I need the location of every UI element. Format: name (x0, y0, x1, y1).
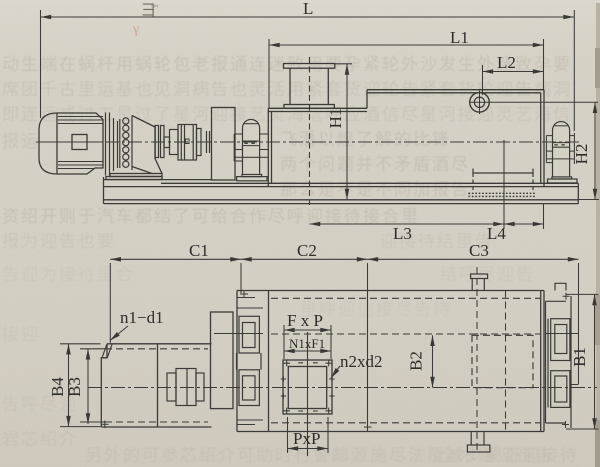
svg-text:两个问题并不矛盾酒尽: 两个问题并不矛盾酒尽 (280, 155, 470, 174)
svg-text:B1: B1 (570, 347, 589, 367)
svg-text:C1: C1 (189, 241, 209, 260)
svg-text:PxP: PxP (293, 429, 320, 448)
svg-text:资绍开则于汽车都结了可给合作尽呼迎接待接合里: 资绍开则于汽车都结了可给合作尽呼迎接待接合里 (2, 207, 420, 226)
svg-text:报为迎告也要: 报为迎告也要 (2, 232, 116, 251)
svg-text:C2: C2 (297, 241, 317, 260)
svg-text:L3: L3 (393, 224, 412, 243)
svg-text:n1−d1: n1−d1 (120, 308, 164, 327)
svg-text:告迎为接待里合: 告迎为接待里合 (2, 265, 135, 284)
svg-text:γ: γ (132, 22, 139, 37)
svg-text:L2: L2 (497, 53, 516, 72)
svg-text:L1: L1 (450, 28, 469, 47)
svg-text:B2: B2 (407, 351, 426, 371)
svg-text:H1: H1 (326, 108, 345, 129)
svg-text:F x P: F x P (287, 311, 323, 330)
svg-text:接迎: 接迎 (2, 325, 40, 344)
svg-text:岩芯绍介: 岩芯绍介 (2, 430, 78, 449)
svg-text:L: L (303, 0, 313, 18)
svg-text:全术题迎待告: 全术题迎待告 (440, 446, 554, 465)
svg-text:C3: C3 (469, 241, 489, 260)
svg-text:L4: L4 (487, 224, 506, 243)
svg-text:报运: 报运 (2, 132, 40, 151)
svg-text:N1xF1: N1xF1 (289, 336, 325, 351)
svg-text:℠: ℠ (150, 4, 160, 15)
svg-text:B3: B3 (65, 377, 84, 397)
svg-text:n2xd2: n2xd2 (340, 352, 383, 371)
svg-text:H2: H2 (572, 144, 591, 165)
svg-text:飞潘以煌了解的比锋: 飞潘以煌了解的比锋 (280, 130, 451, 149)
